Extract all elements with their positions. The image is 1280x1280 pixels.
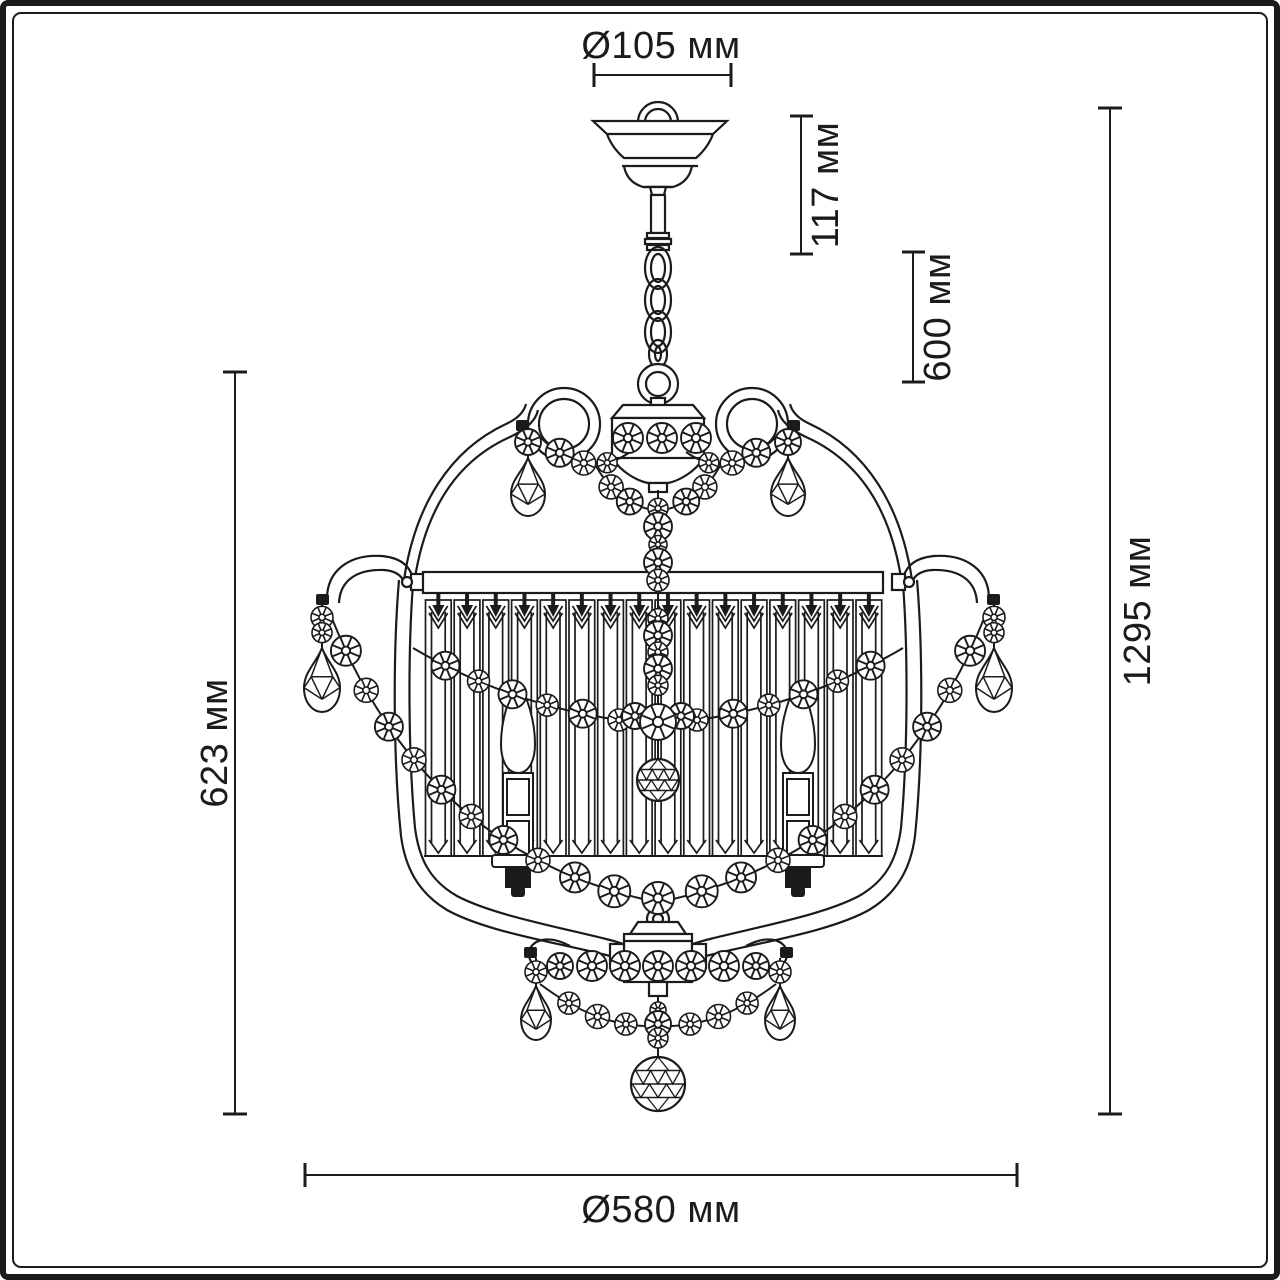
- body-diameter-label: Ø580 мм: [581, 1189, 740, 1231]
- body-height-label: 623 мм: [194, 678, 236, 807]
- technical-drawing-page: Ø105 мм 117 мм 600 мм 1295 мм 623 мм Ø58…: [0, 0, 1280, 1280]
- bead-garlands-and-drops: [304, 420, 1012, 1111]
- ceiling-canopy: [593, 102, 727, 250]
- dimension-suspension-length: 600 мм: [902, 252, 959, 382]
- total-height-label: 1295 мм: [1117, 536, 1159, 687]
- canopy-diameter-label: Ø105 мм: [581, 25, 740, 67]
- dimension-canopy-height: 117 мм: [790, 116, 847, 254]
- dimension-body-height: 623 мм: [194, 372, 247, 1114]
- dimension-body-diameter: Ø580 мм: [305, 1163, 1017, 1231]
- dimension-canopy-diameter: Ø105 мм: [581, 25, 740, 87]
- chandelier-technical-drawing: Ø105 мм 117 мм 600 мм 1295 мм 623 мм Ø58…: [0, 0, 1280, 1280]
- canopy-height-label: 117 мм: [805, 122, 847, 248]
- dimension-total-height: 1295 мм: [1098, 108, 1159, 1114]
- suspension-chain: [645, 247, 671, 368]
- suspension-length-label: 600 мм: [917, 252, 959, 381]
